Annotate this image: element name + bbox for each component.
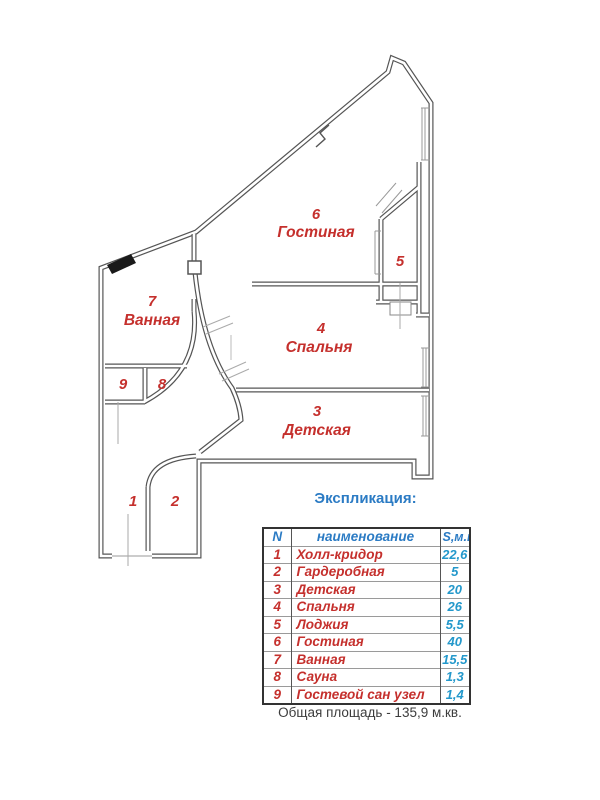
table-row: 6 Гостиная 40 — [263, 634, 470, 652]
table-row: 4 Спальня 26 — [263, 599, 470, 617]
table-row: 7 Ванная 15,5 — [263, 651, 470, 669]
legend-table: N наименование S,м.кв. 1 Холл-кридор 22,… — [262, 527, 471, 705]
legend-cell: 5 — [263, 616, 291, 634]
legend-header-cell: N — [263, 528, 291, 546]
page: 6 Гостиная 5 4 Спальня 3 Детская 7 Ванна… — [0, 0, 600, 800]
legend-cell: Детская — [291, 581, 440, 599]
legend-cell: 5 — [440, 564, 470, 582]
legend-cell: 3 — [263, 581, 291, 599]
legend-cell: Лоджия — [291, 616, 440, 634]
room-number-5: 5 — [396, 253, 405, 270]
room-number-8: 8 — [158, 376, 167, 393]
legend-cell: Холл-кридор — [291, 546, 440, 564]
legend-cell: 26 — [440, 599, 470, 617]
legend-cell: Сауна — [291, 669, 440, 687]
legend-cell: 1 — [263, 546, 291, 564]
legend-cell: 5,5 — [440, 616, 470, 634]
legend-cell: 15,5 — [440, 651, 470, 669]
legend-cell: 9 — [263, 686, 291, 704]
table-row: 8 Сауна 1,3 — [263, 669, 470, 687]
room-number-6: 6 — [312, 206, 321, 223]
legend-cell: Ванная — [291, 651, 440, 669]
legend-cell: Гостиная — [291, 634, 440, 652]
table-row: 2 Гардеробная 5 — [263, 564, 470, 582]
room-number-7: 7 — [148, 293, 157, 310]
room-number-2: 2 — [170, 493, 180, 510]
room-number-3: 3 — [313, 403, 322, 420]
legend-cell: Гостевой сан узел — [291, 686, 440, 704]
legend-cell: 8 — [263, 669, 291, 687]
entry-door-mark — [107, 254, 136, 274]
legend-cell: 2 — [263, 564, 291, 582]
room-name-6: Гостиная — [277, 224, 354, 241]
room-name-7: Ванная — [124, 312, 180, 329]
legend-cell: Спальня — [291, 599, 440, 617]
legend-header-row: N наименование S,м.кв. — [263, 528, 470, 546]
legend-cell: Гардеробная — [291, 564, 440, 582]
legend-header-cell: наименование — [291, 528, 440, 546]
total-area-text: Общая площадь - 135,9 м.кв. — [180, 705, 560, 720]
legend-cell: 40 — [440, 634, 470, 652]
table-row: 1 Холл-кридор 22,6 — [263, 546, 470, 564]
room-name-4: Спальня — [286, 339, 353, 356]
legend-cell: 1,4 — [440, 686, 470, 704]
legend-header-cell: S,м.кв. — [440, 528, 470, 546]
legend-cell: 22,6 — [440, 546, 470, 564]
table-row: 5 Лоджия 5,5 — [263, 616, 470, 634]
door-marks — [112, 183, 411, 566]
legend-cell: 6 — [263, 634, 291, 652]
room-number-4: 4 — [316, 320, 326, 337]
room-number-1: 1 — [129, 493, 137, 510]
legend-cell: 1,3 — [440, 669, 470, 687]
room-number-9: 9 — [119, 376, 128, 393]
table-row: 9 Гостевой сан узел 1,4 — [263, 686, 470, 704]
legend-cell: 4 — [263, 599, 291, 617]
room-name-3: Детская — [281, 422, 351, 439]
legend-cell: 20 — [440, 581, 470, 599]
legend-cell: 7 — [263, 651, 291, 669]
wall-pilaster — [188, 261, 201, 274]
legend-title: Экспликация: — [262, 490, 469, 507]
table-row: 3 Детская 20 — [263, 581, 470, 599]
